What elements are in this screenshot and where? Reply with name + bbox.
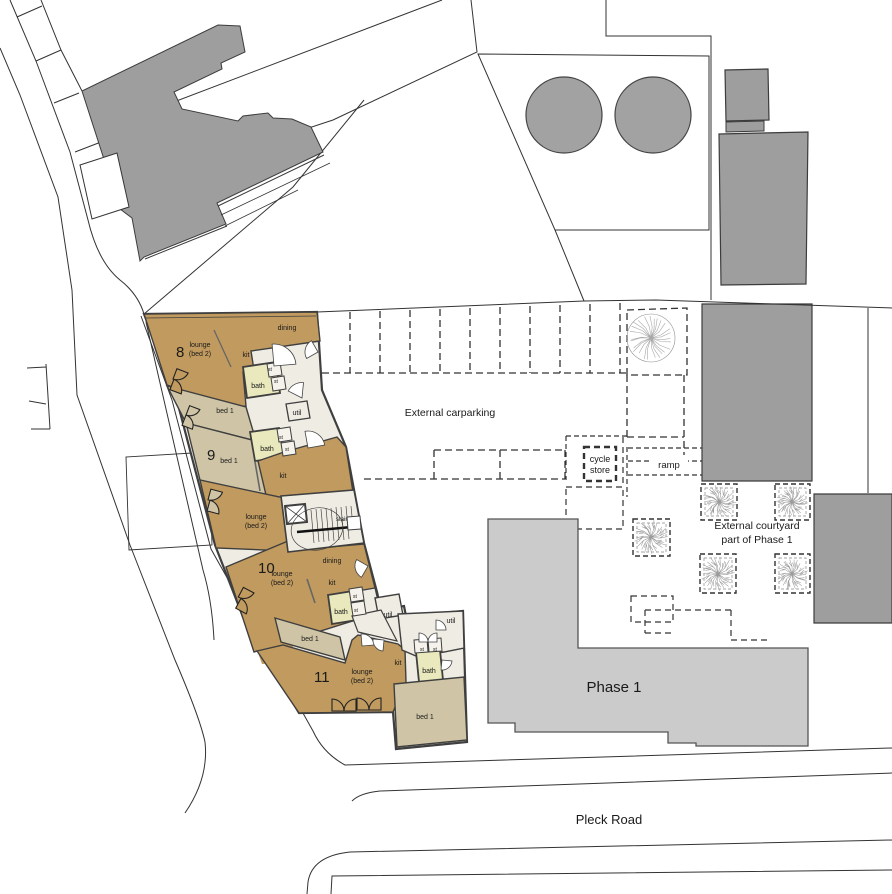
svg-text:st: st bbox=[274, 379, 279, 385]
svg-text:Phase 1: Phase 1 bbox=[586, 679, 641, 696]
svg-text:kit: kit bbox=[280, 473, 287, 480]
svg-text:stair: stair bbox=[336, 517, 347, 523]
svg-text:st: st bbox=[354, 608, 359, 614]
svg-text:st: st bbox=[433, 647, 438, 653]
svg-text:Pleck Road: Pleck Road bbox=[576, 812, 642, 827]
svg-text:st: st bbox=[420, 647, 425, 653]
svg-text:bed 1: bed 1 bbox=[220, 458, 238, 465]
svg-text:st: st bbox=[353, 594, 358, 600]
svg-text:(bed 2): (bed 2) bbox=[189, 351, 211, 358]
svg-text:dining: dining bbox=[278, 325, 297, 332]
svg-text:cycle: cycle bbox=[590, 454, 611, 464]
svg-text:bed 1: bed 1 bbox=[301, 636, 319, 643]
svg-text:store: store bbox=[590, 465, 610, 475]
svg-text:st: st bbox=[285, 447, 290, 453]
svg-text:lounge: lounge bbox=[189, 342, 210, 349]
svg-text:8: 8 bbox=[176, 344, 184, 361]
svg-text:bed 1: bed 1 bbox=[416, 714, 434, 721]
svg-text:(bed 2): (bed 2) bbox=[351, 678, 373, 685]
svg-text:kit: kit bbox=[329, 580, 336, 587]
svg-text:bath: bath bbox=[260, 446, 274, 453]
svg-text:kit: kit bbox=[395, 660, 402, 667]
svg-text:lounge: lounge bbox=[245, 514, 266, 521]
svg-text:bath: bath bbox=[251, 383, 265, 390]
svg-text:lounge: lounge bbox=[271, 571, 292, 578]
svg-text:util: util bbox=[447, 618, 456, 625]
svg-text:(bed 2): (bed 2) bbox=[271, 580, 293, 587]
svg-text:kit: kit bbox=[243, 352, 250, 359]
svg-text:st: st bbox=[268, 367, 273, 373]
svg-text:(bed 2): (bed 2) bbox=[245, 523, 267, 530]
svg-text:9: 9 bbox=[207, 447, 215, 464]
svg-text:part of Phase 1: part of Phase 1 bbox=[721, 534, 792, 546]
svg-text:dining: dining bbox=[323, 558, 342, 565]
svg-text:External courtyard: External courtyard bbox=[714, 520, 799, 532]
svg-text:External carparking: External carparking bbox=[405, 407, 496, 419]
svg-text:bed 1: bed 1 bbox=[216, 408, 234, 415]
svg-text:st: st bbox=[279, 435, 284, 441]
svg-text:lounge: lounge bbox=[351, 669, 372, 676]
svg-text:bath: bath bbox=[422, 668, 436, 675]
svg-text:util: util bbox=[293, 410, 302, 417]
svg-text:util: util bbox=[384, 612, 393, 619]
svg-text:11: 11 bbox=[314, 669, 330, 686]
svg-text:ramp: ramp bbox=[658, 460, 680, 471]
svg-text:bath: bath bbox=[334, 609, 348, 616]
